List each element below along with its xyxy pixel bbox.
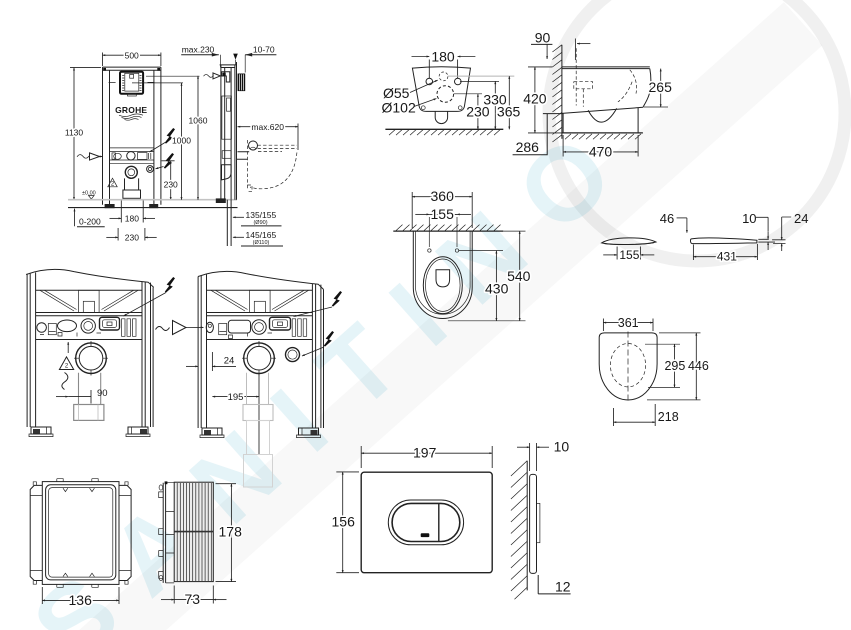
svg-text:156: 156 (332, 513, 356, 529)
svg-text:180: 180 (431, 48, 455, 64)
svg-text:2: 2 (65, 364, 69, 370)
svg-text:430: 430 (485, 281, 509, 297)
svg-text:10: 10 (554, 439, 570, 455)
svg-text:1000: 1000 (172, 135, 191, 145)
svg-text:145/165: 145/165 (246, 230, 277, 240)
svg-text:73: 73 (185, 591, 201, 607)
svg-text:10-70: 10-70 (253, 45, 275, 55)
svg-text:max.230: max.230 (182, 45, 215, 55)
svg-text:90: 90 (97, 388, 108, 399)
svg-text:195: 195 (228, 392, 244, 403)
svg-text:1060: 1060 (189, 116, 208, 126)
svg-text:295: 295 (664, 359, 685, 373)
svg-text:265: 265 (649, 79, 673, 95)
svg-text:1130: 1130 (65, 128, 84, 138)
svg-text:155: 155 (619, 248, 639, 262)
svg-text:2: 2 (111, 181, 115, 187)
svg-text:365: 365 (497, 103, 521, 119)
svg-text:218: 218 (658, 410, 679, 424)
svg-text:230: 230 (164, 180, 178, 190)
svg-text:446: 446 (688, 359, 709, 373)
svg-text:136: 136 (69, 592, 93, 608)
svg-text:230: 230 (125, 232, 139, 242)
svg-text:178: 178 (219, 523, 243, 539)
svg-text:24: 24 (224, 356, 235, 367)
svg-text:420: 420 (523, 90, 547, 106)
svg-text:155: 155 (431, 206, 455, 222)
svg-text:12: 12 (555, 578, 571, 594)
svg-text:max.620: max.620 (251, 122, 284, 132)
svg-text:46: 46 (660, 211, 674, 226)
svg-text:180: 180 (125, 213, 139, 223)
svg-text:286: 286 (516, 139, 540, 155)
svg-text:0-200: 0-200 (79, 217, 101, 227)
svg-text:10: 10 (742, 211, 756, 226)
svg-text:360: 360 (431, 188, 455, 204)
svg-text:431: 431 (717, 249, 737, 263)
svg-text:SANITINO: SANITINO (12, 114, 634, 630)
svg-text:197: 197 (413, 445, 437, 461)
svg-text:24: 24 (794, 211, 808, 226)
svg-text:500: 500 (125, 50, 139, 60)
svg-text:540: 540 (507, 268, 531, 284)
svg-text:470: 470 (589, 143, 613, 159)
svg-text:90: 90 (535, 30, 551, 46)
svg-text:Ø102: Ø102 (382, 100, 416, 116)
svg-text:135/155: 135/155 (246, 210, 277, 220)
svg-text:(Ø90): (Ø90) (253, 220, 267, 226)
svg-text:(Ø110): (Ø110) (253, 240, 270, 246)
svg-text:361: 361 (618, 316, 639, 330)
svg-text:GROHE: GROHE (115, 105, 147, 115)
